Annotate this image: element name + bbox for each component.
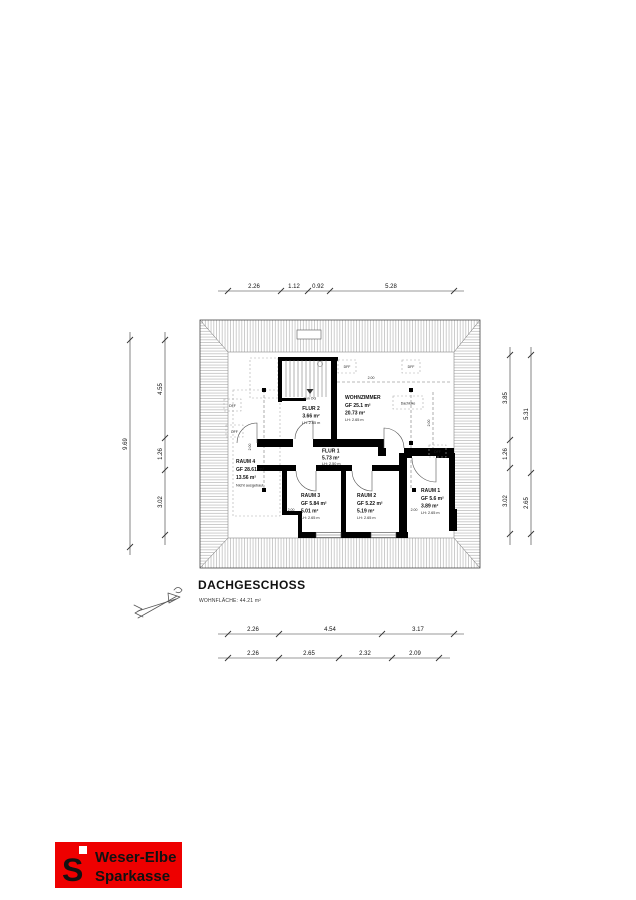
svg-text:GF 28.61 m²: GF 28.61 m²	[236, 467, 265, 473]
svg-text:Nicht ausgebaut: Nicht ausgebaut	[236, 484, 264, 488]
floor-plan: Von OG DFF DFF DFF DFF DFF Dachluke 2.00…	[0, 270, 636, 680]
svg-text:GF 5.6 m²: GF 5.6 m²	[421, 496, 444, 502]
svg-text:3.66 m²: 3.66 m²	[302, 414, 320, 420]
dim-label: 2.26	[248, 284, 260, 290]
dim-label: 9.69	[123, 438, 129, 450]
dim-label: 2.32	[359, 651, 371, 657]
svg-text:LH: 2.65 m: LH: 2.65 m	[345, 418, 364, 422]
svg-text:13.56 m²: 13.56 m²	[236, 475, 256, 481]
dim-label: 4.55	[158, 383, 164, 395]
svg-text:5.19 m²: 5.19 m²	[357, 509, 375, 515]
svg-text:RAUM 3: RAUM 3	[301, 493, 320, 499]
dimension-top: 2.26 1.12 0.92 5.28	[218, 284, 464, 294]
dimension-right-outer: 5.31 2.65	[524, 347, 534, 545]
dimension-bottom-1: 2.26 4.54 3.17	[218, 627, 464, 637]
dim-label: 2.09	[409, 651, 421, 657]
sparkasse-s-icon: S	[62, 846, 87, 888]
sparkasse-logo: S Weser-Elbe Sparkasse	[55, 842, 182, 888]
dff-label: DFF	[231, 430, 238, 434]
dim-label: 1.12	[288, 284, 300, 290]
svg-text:LH: 2.50 m: LH: 2.50 m	[322, 462, 341, 466]
dim-label: 1.26	[503, 448, 509, 460]
dim-label: 2.65	[524, 497, 530, 509]
dff-label: DFF	[434, 450, 441, 454]
height-mark: 2.00	[288, 508, 295, 512]
height-mark: 2.00	[248, 444, 252, 451]
dim-label: 2.65	[303, 651, 315, 657]
svg-text:LH: 2.65 m: LH: 2.65 m	[302, 421, 321, 425]
dim-label: 3.02	[503, 495, 509, 507]
dim-label: 1.26	[158, 448, 164, 460]
svg-text:20.73 m²: 20.73 m²	[345, 411, 365, 417]
svg-text:RAUM 1: RAUM 1	[421, 488, 440, 494]
dim-label: 4.54	[324, 627, 336, 633]
svg-text:LH: 2.65 m: LH: 2.65 m	[301, 516, 320, 520]
dimension-right-inner: 3.85 1.26 3.02	[503, 347, 513, 545]
dim-label: 3.17	[412, 627, 424, 633]
height-mark: 2.00	[411, 508, 418, 512]
svg-text:3.89 m²: 3.89 m²	[421, 504, 439, 510]
page-title: DACHGESCHOSS	[198, 578, 305, 592]
svg-text:LH: 2.65 m: LH: 2.65 m	[357, 516, 376, 520]
page-subtitle: WOHNFLÄCHE: 44.21 m²	[199, 598, 261, 604]
svg-text:WOHNZIMMER: WOHNZIMMER	[345, 395, 381, 401]
dim-label: 3.85	[503, 392, 509, 404]
dim-label: 3.02	[158, 496, 164, 508]
svg-text:5.73 m²: 5.73 m²	[322, 456, 340, 462]
svg-text:5.01 m²: 5.01 m²	[301, 509, 319, 515]
svg-text:LH: 2.65 m: LH: 2.65 m	[421, 511, 440, 515]
dimension-bottom-2: 2.26 2.65 2.32 2.09	[218, 651, 450, 661]
dachluke-label: Dachluke	[401, 402, 416, 406]
svg-text:GF 5.84 m²: GF 5.84 m²	[301, 501, 327, 507]
svg-text:RAUM 4: RAUM 4	[236, 459, 255, 465]
room-label-flur2: FLUR 2 3.66 m² LH: 2.65 m	[302, 406, 321, 425]
chimney	[297, 330, 321, 339]
dim-label: 2.26	[247, 651, 259, 657]
dff-label: DFF	[344, 365, 351, 369]
logo-text-line2: Sparkasse	[95, 868, 170, 885]
dff-label: DFF	[408, 365, 415, 369]
room-label-flur1: FLUR 1 5.73 m² LH: 2.50 m	[322, 449, 341, 467]
dim-label: 0.92	[312, 284, 324, 290]
svg-text:GF 25.1 m²: GF 25.1 m²	[345, 403, 371, 409]
stair-label: Von OG	[304, 397, 317, 401]
height-mark: 2.00	[427, 420, 431, 427]
logo-text-line1: Weser-Elbe	[95, 849, 176, 866]
svg-text:RAUM 2: RAUM 2	[357, 493, 376, 499]
dim-label: 5.31	[524, 408, 530, 420]
svg-text:GF 5.22 m²: GF 5.22 m²	[357, 501, 383, 507]
dim-label: 2.26	[247, 627, 259, 633]
svg-text:S: S	[62, 852, 83, 888]
dim-label: 5.28	[385, 284, 397, 290]
svg-text:FLUR 2: FLUR 2	[302, 406, 320, 412]
dff-label: DFF	[229, 404, 236, 408]
dimension-left-inner: 4.55 1.26 3.02	[158, 332, 168, 545]
north-arrow-icon	[134, 588, 182, 619]
height-mark: 2.00	[368, 376, 375, 380]
svg-text:FLUR 1: FLUR 1	[322, 449, 340, 455]
dimension-left-outer: 9.69	[123, 332, 133, 555]
